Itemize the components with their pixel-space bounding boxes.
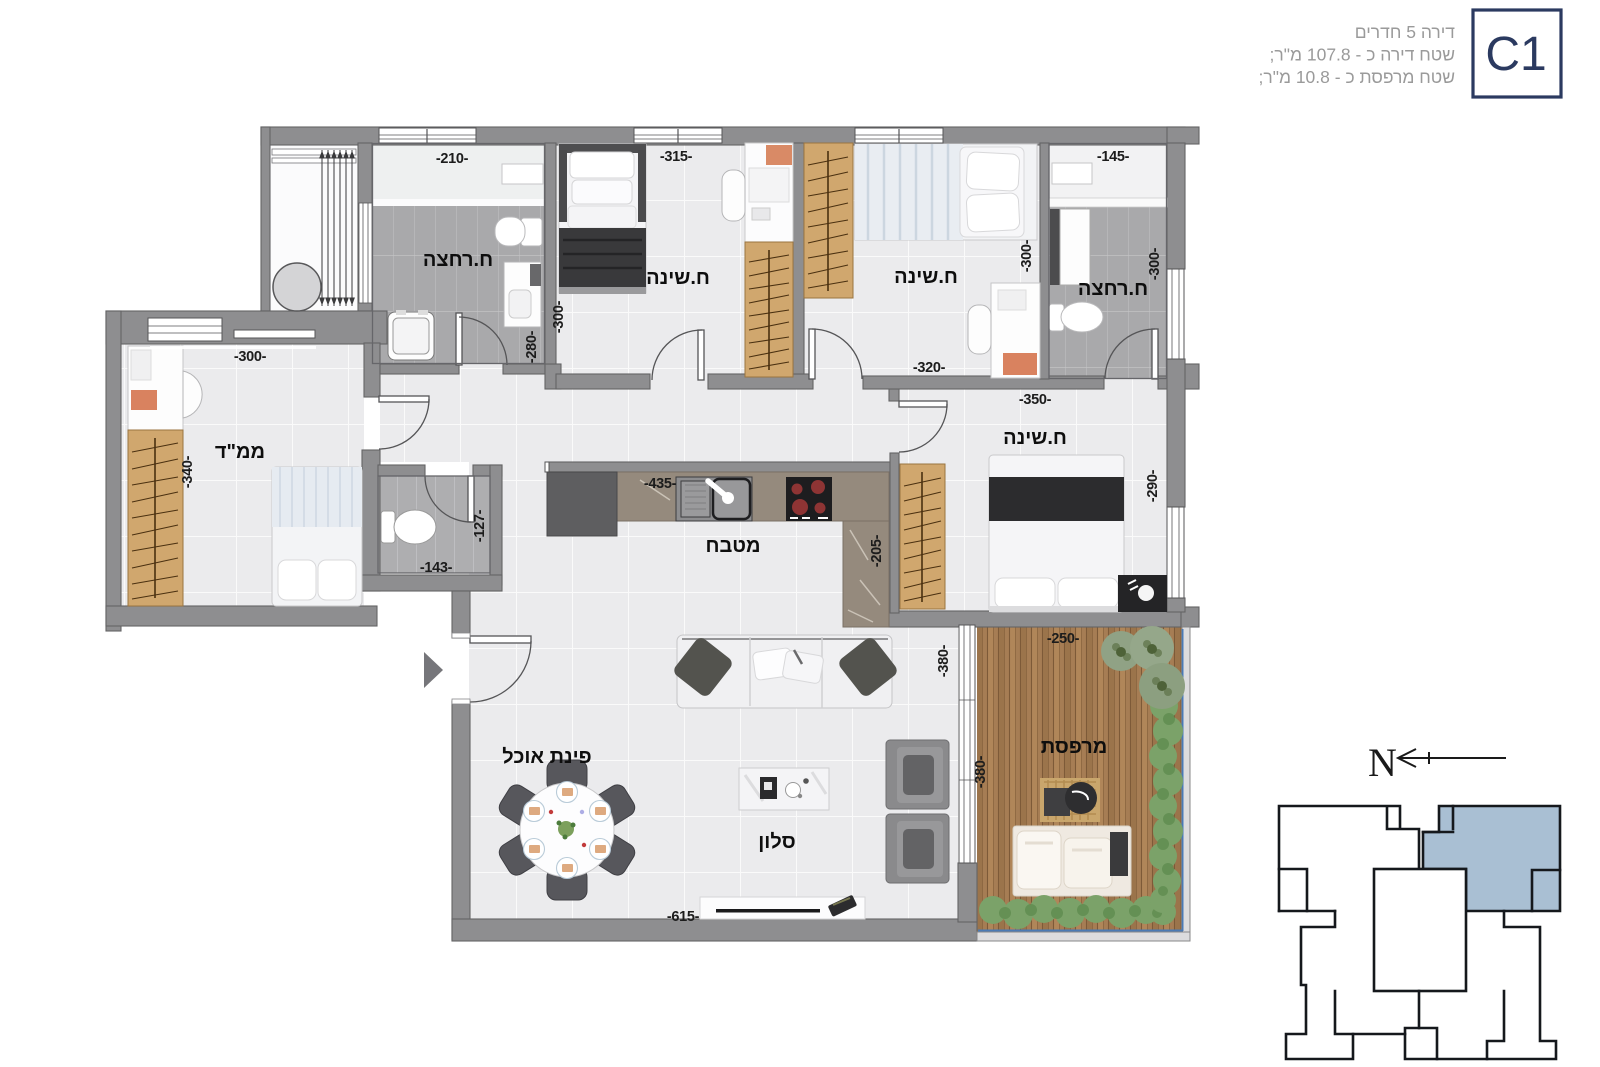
- svg-text:סלון: סלון: [758, 831, 795, 853]
- svg-text:-380-: -380-: [936, 644, 952, 677]
- svg-text:-615-: -615-: [667, 909, 700, 925]
- svg-text:מטבח: מטבח: [705, 535, 760, 557]
- svg-text:-300-: -300-: [1147, 247, 1163, 280]
- svg-text:-127-: -127-: [472, 509, 488, 542]
- svg-text:ח.שינה: ח.שינה: [894, 266, 958, 288]
- svg-text:-210-: -210-: [436, 151, 469, 167]
- svg-text:-340-: -340-: [180, 455, 196, 488]
- svg-text:N: N: [1368, 740, 1397, 785]
- svg-text:ח.שינה: ח.שינה: [646, 267, 710, 289]
- svg-text:-300-: -300-: [234, 349, 267, 365]
- svg-text:-320-: -320-: [913, 360, 946, 376]
- svg-text:-300-: -300-: [1019, 239, 1035, 272]
- svg-text:-143-: -143-: [420, 560, 453, 576]
- svg-text:ח.רחצה: ח.רחצה: [1078, 278, 1148, 300]
- svg-text:-205-: -205-: [869, 534, 885, 567]
- svg-text:ח.רחצה: ח.רחצה: [423, 249, 493, 271]
- svg-text:-300-: -300-: [551, 300, 567, 333]
- svg-text:-350-: -350-: [1019, 392, 1052, 408]
- svg-text:-290-: -290-: [1145, 469, 1161, 502]
- svg-text:-315-: -315-: [660, 149, 693, 165]
- svg-text:-435-: -435-: [644, 476, 677, 492]
- svg-text:C1: C1: [1485, 28, 1546, 81]
- svg-text:ח.שינה: ח.שינה: [1003, 427, 1067, 449]
- svg-text:ממ"ד: ממ"ד: [215, 441, 265, 463]
- svg-text:שטח מרפסת כ - 10.8 מ"ר;‏: שטח מרפסת כ - 10.8 מ"ר;‏: [1259, 67, 1456, 87]
- svg-text:מרפסת: מרפסת: [1041, 736, 1108, 758]
- svg-text:-145-: -145-: [1097, 149, 1130, 165]
- svg-text:דירה 5 חדרים: דירה 5 חדרים: [1355, 22, 1456, 42]
- svg-text:-280-: -280-: [524, 330, 540, 363]
- svg-text:פינת אוכל: פינת אוכל: [502, 746, 591, 768]
- svg-text:-250-: -250-: [1047, 631, 1080, 647]
- svg-text:-380-: -380-: [973, 755, 989, 788]
- svg-text:שטח דירה כ - 107.8 מ"ר;‏: שטח דירה כ - 107.8 מ"ר;‏: [1270, 45, 1456, 65]
